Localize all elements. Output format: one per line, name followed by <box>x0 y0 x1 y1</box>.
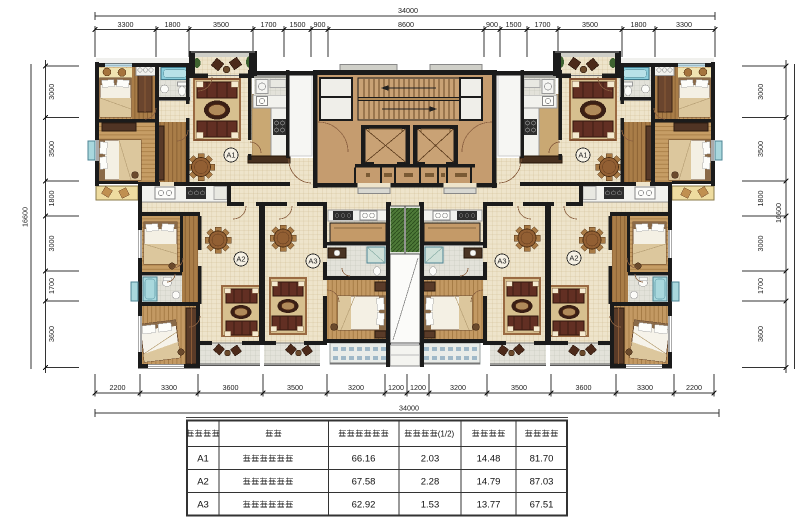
svg-text:3300: 3300 <box>118 20 134 29</box>
svg-text:3200: 3200 <box>348 383 364 392</box>
svg-text:34000: 34000 <box>399 404 419 413</box>
svg-text:3300: 3300 <box>637 383 653 392</box>
svg-text:1200: 1200 <box>410 383 426 392</box>
svg-text:1800: 1800 <box>631 20 647 29</box>
svg-text:3600: 3600 <box>223 383 239 392</box>
svg-text:3500: 3500 <box>582 20 598 29</box>
svg-text:1700: 1700 <box>535 20 551 29</box>
svg-text:67.58: 67.58 <box>352 477 376 488</box>
svg-text:3000: 3000 <box>756 84 765 100</box>
svg-text:(1/2): (1/2) <box>438 430 455 439</box>
svg-text:16600: 16600 <box>774 203 783 223</box>
svg-text:A3: A3 <box>497 257 506 266</box>
svg-text:1800: 1800 <box>756 191 765 207</box>
svg-text:3300: 3300 <box>676 20 692 29</box>
svg-text:13.77: 13.77 <box>477 500 501 511</box>
svg-text:1700: 1700 <box>261 20 277 29</box>
svg-text:66.16: 66.16 <box>352 454 376 465</box>
svg-text:A2: A2 <box>197 477 209 488</box>
svg-text:1.53: 1.53 <box>421 500 440 511</box>
svg-text:3500: 3500 <box>47 141 56 157</box>
svg-text:3500: 3500 <box>511 383 527 392</box>
svg-text:1800: 1800 <box>165 20 181 29</box>
svg-text:2.03: 2.03 <box>421 454 440 465</box>
svg-text:1500: 1500 <box>290 20 306 29</box>
svg-text:3000: 3000 <box>47 84 56 100</box>
svg-text:3500: 3500 <box>287 383 303 392</box>
svg-text:81.70: 81.70 <box>530 454 554 465</box>
svg-text:A1: A1 <box>226 151 235 160</box>
svg-text:1700: 1700 <box>756 278 765 294</box>
svg-text:67.51: 67.51 <box>530 500 554 511</box>
svg-text:1500: 1500 <box>506 20 522 29</box>
svg-text:3500: 3500 <box>756 141 765 157</box>
svg-text:3000: 3000 <box>47 236 56 252</box>
svg-text:3600: 3600 <box>756 326 765 342</box>
svg-text:2200: 2200 <box>110 383 126 392</box>
svg-text:1200: 1200 <box>388 383 404 392</box>
svg-text:3000: 3000 <box>756 236 765 252</box>
svg-text:A1: A1 <box>197 454 209 465</box>
svg-text:62.92: 62.92 <box>352 500 376 511</box>
svg-text:900: 900 <box>314 20 326 29</box>
svg-text:1700: 1700 <box>47 278 56 294</box>
svg-text:3600: 3600 <box>576 383 592 392</box>
svg-text:2200: 2200 <box>686 383 702 392</box>
svg-text:14.79: 14.79 <box>477 477 501 488</box>
svg-text:3500: 3500 <box>213 20 229 29</box>
svg-text:1800: 1800 <box>47 191 56 207</box>
svg-text:2.28: 2.28 <box>421 477 440 488</box>
svg-text:A1: A1 <box>578 151 587 160</box>
svg-text:900: 900 <box>486 20 498 29</box>
svg-text:8600: 8600 <box>398 20 414 29</box>
svg-text:3200: 3200 <box>450 383 466 392</box>
svg-text:3300: 3300 <box>161 383 177 392</box>
svg-text:87.03: 87.03 <box>530 477 554 488</box>
svg-text:3600: 3600 <box>47 326 56 342</box>
svg-text:A2: A2 <box>236 255 245 264</box>
svg-text:34000: 34000 <box>398 6 418 15</box>
svg-text:16600: 16600 <box>21 207 30 227</box>
svg-text:A2: A2 <box>569 254 578 263</box>
svg-text:A3: A3 <box>197 500 209 511</box>
svg-text:14.48: 14.48 <box>477 454 501 465</box>
svg-text:A3: A3 <box>308 257 317 266</box>
